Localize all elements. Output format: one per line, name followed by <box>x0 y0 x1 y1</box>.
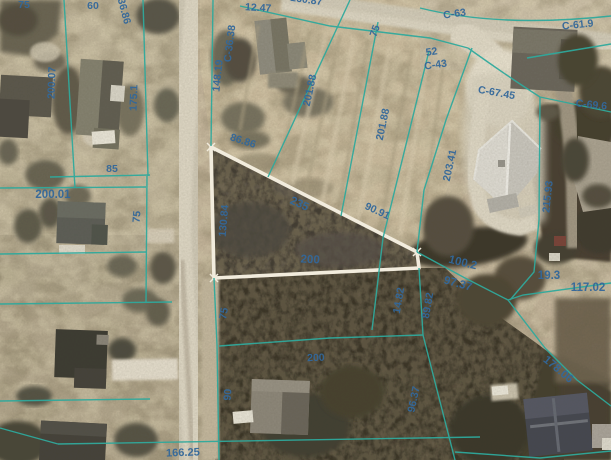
svg-text:117.02: 117.02 <box>571 282 606 294</box>
svg-text:166.25: 166.25 <box>166 446 200 459</box>
svg-text:200: 200 <box>300 254 320 267</box>
svg-text:85: 85 <box>106 163 118 175</box>
svg-text:90: 90 <box>222 388 235 401</box>
svg-text:60: 60 <box>87 0 99 12</box>
svg-text:52: 52 <box>425 45 438 59</box>
svg-text:12.47: 12.47 <box>245 1 272 14</box>
svg-text:75: 75 <box>18 0 30 11</box>
svg-text:200: 200 <box>307 352 325 365</box>
svg-text:19.3: 19.3 <box>538 270 560 282</box>
svg-text:75: 75 <box>131 210 144 223</box>
svg-text:200.01: 200.01 <box>35 189 71 201</box>
svg-text:75: 75 <box>217 307 231 321</box>
svg-text:200.07: 200.07 <box>45 66 58 99</box>
svg-text:175.1: 175.1 <box>128 84 141 111</box>
